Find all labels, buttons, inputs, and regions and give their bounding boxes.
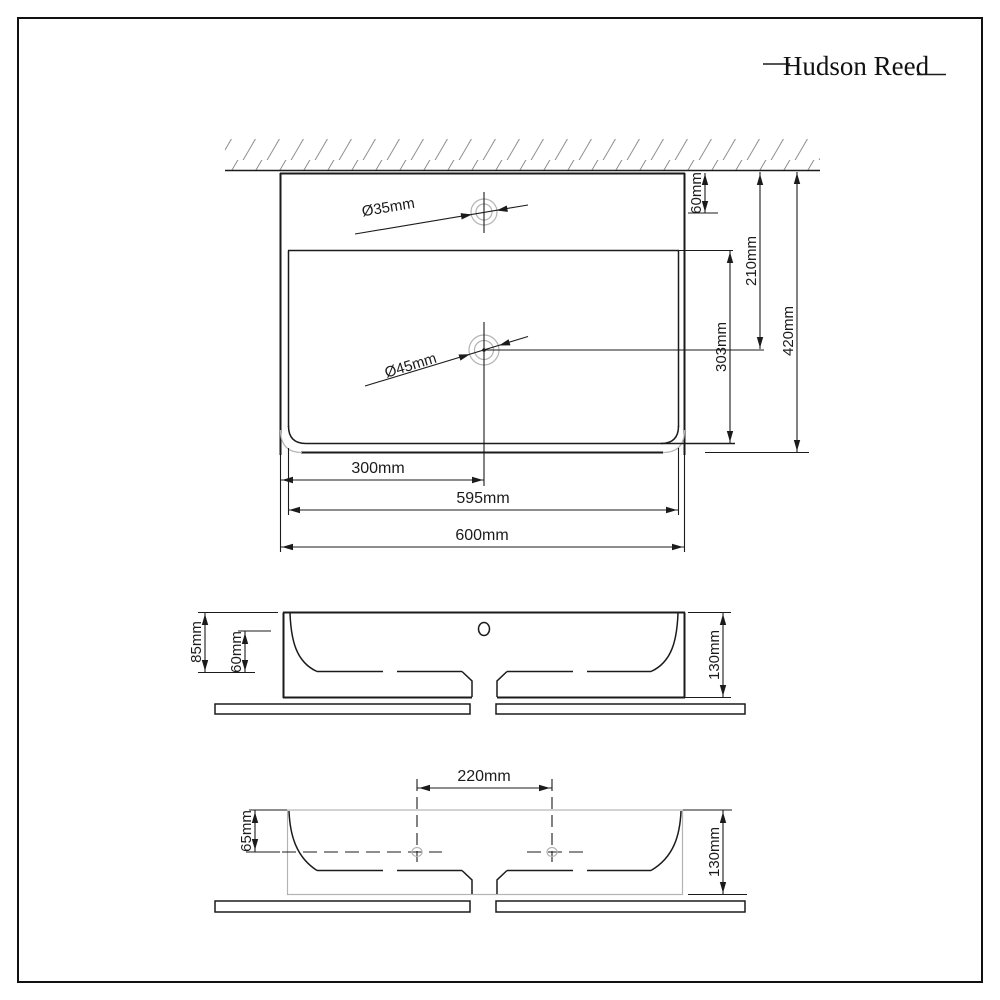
brand-logo: Hudson Reed: [763, 51, 946, 81]
front-counter-left: [215, 704, 470, 714]
underside-counter-left: [215, 901, 470, 912]
dim-595-arrow-right: [666, 507, 677, 513]
bowl-bottom-left-arc: [289, 426, 307, 444]
underside-dim-130-arrow-top: [720, 812, 726, 823]
front-dim-85-label: 85mm: [188, 621, 205, 663]
technical-drawing-page: Hudson Reed Ø35mm: [0, 0, 1000, 1000]
bowl-bottom-right-arc: [661, 426, 679, 444]
front-waste-recess: [462, 672, 507, 698]
dim-210-arrow-bottom: [757, 337, 763, 348]
tap-hole-diameter-label: Ø35mm: [361, 195, 416, 221]
front-dim-60-label: 60mm: [228, 631, 245, 673]
plan-bottom-dimensions: 300mm 595mm 600mm: [281, 448, 685, 552]
tap-hole: Ø35mm: [355, 192, 528, 234]
underside-dim-130-label: 130mm: [706, 827, 723, 877]
front-dim-130-arrow-bottom: [720, 685, 726, 696]
front-counter-right: [496, 704, 745, 714]
front-elevation-view: 85mm 60mm 130mm: [188, 613, 745, 715]
waste-hole: Ø45mm: [365, 322, 764, 486]
plan-view: Ø35mm Ø45mm 60mm 303mm: [225, 139, 820, 552]
basin-bottom-left-corner-arc: [281, 430, 303, 453]
dim-303-arrow-bottom: [727, 431, 733, 442]
underside-waste-recess: [462, 871, 507, 895]
dim-300-arrow-left: [282, 477, 293, 483]
underside-curve-left: [289, 811, 317, 871]
dim-595-label: 595mm: [456, 490, 509, 507]
underside-dim-130-arrow-bottom: [720, 882, 726, 893]
dim-300-arrow-right: [472, 477, 483, 483]
front-bowl-curve-right: [651, 613, 678, 672]
dim-303-label: 303mm: [713, 322, 730, 372]
waste-hole-diameter-label: Ø45mm: [383, 350, 439, 382]
dim-220-label: 220mm: [457, 768, 510, 785]
basin-technical-drawing: Hudson Reed Ø35mm: [0, 0, 1000, 1000]
dim-600-arrow-right: [672, 544, 683, 550]
dim-420-arrow-top: [794, 173, 800, 184]
dim-210-label: 210mm: [743, 236, 760, 286]
front-tap-hole: [479, 623, 490, 636]
logo-text: Hudson Reed: [783, 51, 930, 81]
front-bowl-curve-left: [290, 613, 317, 672]
waste-leader-arrow-right: [498, 339, 510, 348]
dim-60-label: 60mm: [688, 172, 705, 214]
dim-220-arrow-left: [419, 785, 430, 791]
dim-220-arrow-right: [539, 785, 550, 791]
wall-hatch: [225, 139, 820, 170]
plan-right-dimensions: 60mm 303mm 210mm 420mm: [679, 172, 809, 453]
front-dim-130-arrow-top: [720, 614, 726, 625]
dim-600-label: 600mm: [455, 527, 508, 544]
basin-bottom-right-corner-arc: [663, 430, 685, 453]
underside-counter-right: [496, 901, 745, 912]
dim-420-arrow-bottom: [794, 440, 800, 451]
underside-view: 220mm 65mm 130mm: [215, 768, 747, 912]
dim-303-arrow-top: [727, 252, 733, 263]
dim-600-arrow-left: [282, 544, 293, 550]
dim-420-label: 420mm: [780, 306, 797, 356]
dim-300-label: 300mm: [351, 460, 404, 477]
dim-210-arrow-top: [757, 174, 763, 185]
dim-65-label: 65mm: [238, 810, 255, 852]
front-dim-130-label: 130mm: [706, 630, 723, 680]
dim-595-arrow-left: [289, 507, 300, 513]
underside-curve-right: [651, 811, 681, 871]
